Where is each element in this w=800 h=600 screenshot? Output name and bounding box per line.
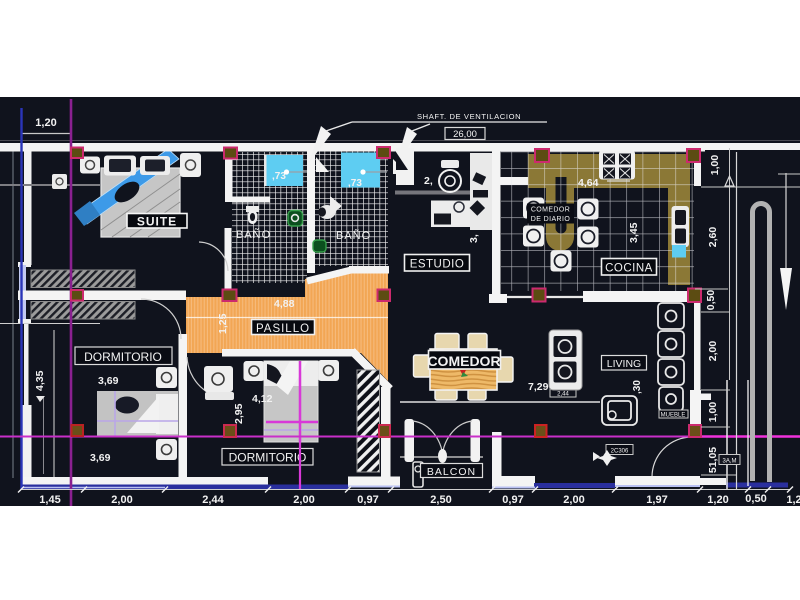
svg-text:1,20: 1,20 [707, 494, 728, 506]
svg-text:COMEDOR: COMEDOR [427, 353, 500, 369]
svg-text:2,95: 2,95 [233, 403, 245, 424]
svg-text:51,05: 51,05 [707, 447, 719, 473]
svg-text:COCINA: COCINA [605, 263, 653, 275]
svg-text:COMEDOR: COMEDOR [531, 207, 570, 214]
svg-text:3,: 3, [468, 234, 480, 243]
svg-text:3,69: 3,69 [90, 452, 111, 464]
svg-text:1,00: 1,00 [707, 402, 719, 423]
svg-text:LIVING: LIVING [607, 358, 641, 370]
svg-text:1,00: 1,00 [709, 155, 721, 176]
svg-text:4,88: 4,88 [274, 298, 295, 310]
svg-text:7,29: 7,29 [528, 381, 549, 393]
svg-text:DE DIARIO: DE DIARIO [531, 216, 571, 223]
svg-text:2,44: 2,44 [202, 494, 224, 506]
svg-text:2,00: 2,00 [707, 341, 719, 362]
svg-text:2,44: 2,44 [557, 392, 569, 398]
svg-text:BAÑO: BAÑO [236, 228, 271, 241]
svg-text:2,50: 2,50 [430, 494, 451, 506]
svg-text:2,00: 2,00 [293, 494, 314, 506]
svg-text:1,20: 1,20 [35, 117, 56, 129]
svg-text:0,50: 0,50 [705, 290, 717, 311]
svg-text:,30: ,30 [632, 380, 643, 394]
svg-text:MUEBLE: MUEBLE [661, 413, 686, 419]
svg-text:0,97: 0,97 [357, 494, 378, 506]
svg-text:4,64: 4,64 [578, 177, 599, 189]
svg-text:2,: 2, [424, 175, 433, 187]
svg-text:DORMITORIO: DORMITORIO [84, 350, 162, 364]
svg-text:1,25: 1,25 [217, 313, 229, 334]
svg-text:BALCON: BALCON [427, 466, 476, 478]
svg-text:SHAFT. DE VENTILACION: SHAFT. DE VENTILACION [417, 112, 521, 121]
svg-text:3,69: 3,69 [98, 375, 119, 387]
svg-text:2,60: 2,60 [707, 227, 719, 248]
svg-text:ESTUDIO: ESTUDIO [410, 259, 465, 271]
svg-text:1,2: 1,2 [786, 494, 800, 506]
svg-text:,73: ,73 [348, 178, 362, 189]
svg-text:SUITE: SUITE [137, 215, 177, 229]
svg-text:2,00: 2,00 [563, 494, 584, 506]
svg-text:0,50: 0,50 [745, 493, 766, 505]
svg-text:4,12: 4,12 [252, 393, 273, 405]
svg-text:DORMITORIO: DORMITORIO [229, 451, 307, 465]
svg-text:3,45: 3,45 [628, 222, 640, 243]
svg-text:26,00: 26,00 [453, 129, 477, 140]
svg-text:0,97: 0,97 [502, 494, 523, 506]
svg-text:1,97: 1,97 [646, 494, 667, 506]
svg-text:2,00: 2,00 [111, 494, 132, 506]
svg-text:4,35: 4,35 [34, 370, 46, 391]
svg-text:2C306: 2C306 [611, 449, 629, 455]
svg-text:3A,M: 3A,M [722, 459, 736, 465]
svg-text:BAÑO: BAÑO [336, 229, 371, 242]
svg-text:1,45: 1,45 [39, 494, 60, 506]
svg-text:PASILLO: PASILLO [256, 323, 310, 335]
